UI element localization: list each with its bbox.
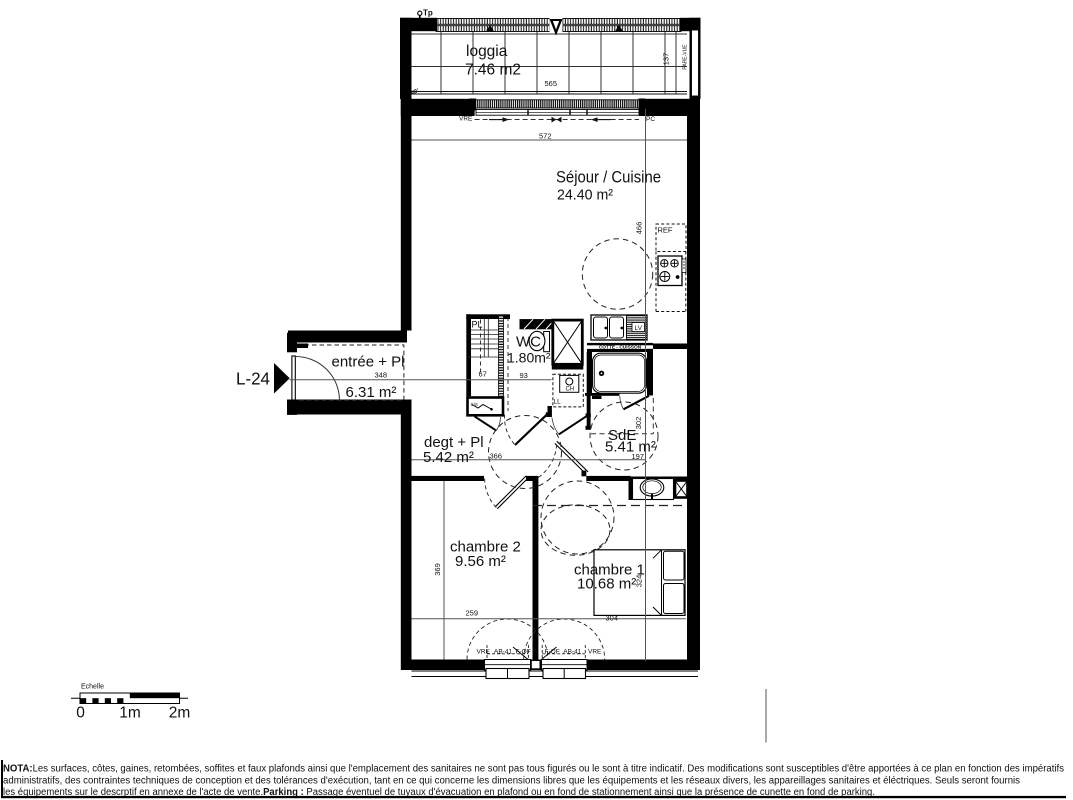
svg-text:F-OF: F-OF	[545, 649, 560, 656]
svg-text:L-24: L-24	[236, 369, 270, 389]
svg-text:5.42 m²: 5.42 m²	[423, 449, 474, 466]
svg-text:Séjour / Cuisine: Séjour / Cuisine	[556, 168, 661, 187]
svg-text:1m: 1m	[119, 705, 141, 722]
svg-text:348: 348	[375, 371, 388, 380]
svg-text:VRE: VRE	[459, 116, 473, 123]
svg-text:565: 565	[545, 79, 558, 88]
svg-text:entrée + Pl: entrée + Pl	[332, 354, 405, 371]
svg-text:LL: LL	[554, 399, 562, 406]
svg-text:67: 67	[479, 370, 487, 379]
svg-text:137: 137	[662, 53, 671, 66]
svg-text:VRE: VRE	[477, 649, 491, 656]
svg-text:259: 259	[466, 609, 479, 618]
svg-text:AB-41: AB-41	[494, 649, 512, 656]
svg-text:administratifs, des contrainte: administratifs, des contraintes techniqu…	[3, 775, 1020, 786]
svg-text:LV: LV	[635, 325, 643, 332]
svg-text:WC: WC	[516, 334, 541, 351]
svg-text:1.80m²: 1.80m²	[507, 350, 551, 366]
svg-text:VRE: VRE	[588, 649, 602, 656]
svg-text:466: 466	[635, 222, 644, 235]
svg-text:572: 572	[539, 132, 552, 141]
svg-text:93: 93	[520, 371, 528, 380]
svg-text:0: 0	[76, 705, 85, 722]
svg-text:Echelle: Echelle	[81, 684, 104, 691]
svg-text:REF: REF	[658, 226, 673, 235]
svg-text:6.31 m²: 6.31 m²	[346, 384, 397, 401]
svg-text:7.46 m2: 7.46 m2	[465, 62, 521, 79]
svg-text:5.41 m²: 5.41 m²	[605, 439, 656, 456]
svg-text:369: 369	[433, 563, 442, 576]
svg-text:loggia: loggia	[466, 43, 508, 60]
svg-text:S/S: S/S	[471, 402, 478, 407]
svg-text:PARE-VUE: PARE-VUE	[683, 44, 689, 70]
svg-text:24.40 m²: 24.40 m²	[557, 187, 613, 204]
svg-text:PC: PC	[646, 116, 655, 123]
svg-text:CH: CH	[566, 387, 575, 393]
svg-text:PL: PL	[472, 320, 483, 330]
svg-text:9.56 m²: 9.56 m²	[455, 553, 506, 570]
svg-text:COTTE - CUISSON: COTTE - CUISSON	[599, 345, 642, 351]
svg-text:F-OF: F-OF	[516, 649, 531, 656]
svg-text:304: 304	[606, 614, 619, 623]
svg-text:NOTA:Les surfaces, côtes, gain: NOTA:Les surfaces, côtes, gaines, retomb…	[3, 764, 1064, 775]
svg-text:AB-41: AB-41	[563, 649, 581, 656]
svg-text:2m: 2m	[169, 705, 191, 722]
svg-text:10.68 m²: 10.68 m²	[577, 576, 636, 593]
svg-text:Tp: Tp	[423, 9, 433, 18]
svg-text:366: 366	[490, 452, 503, 461]
